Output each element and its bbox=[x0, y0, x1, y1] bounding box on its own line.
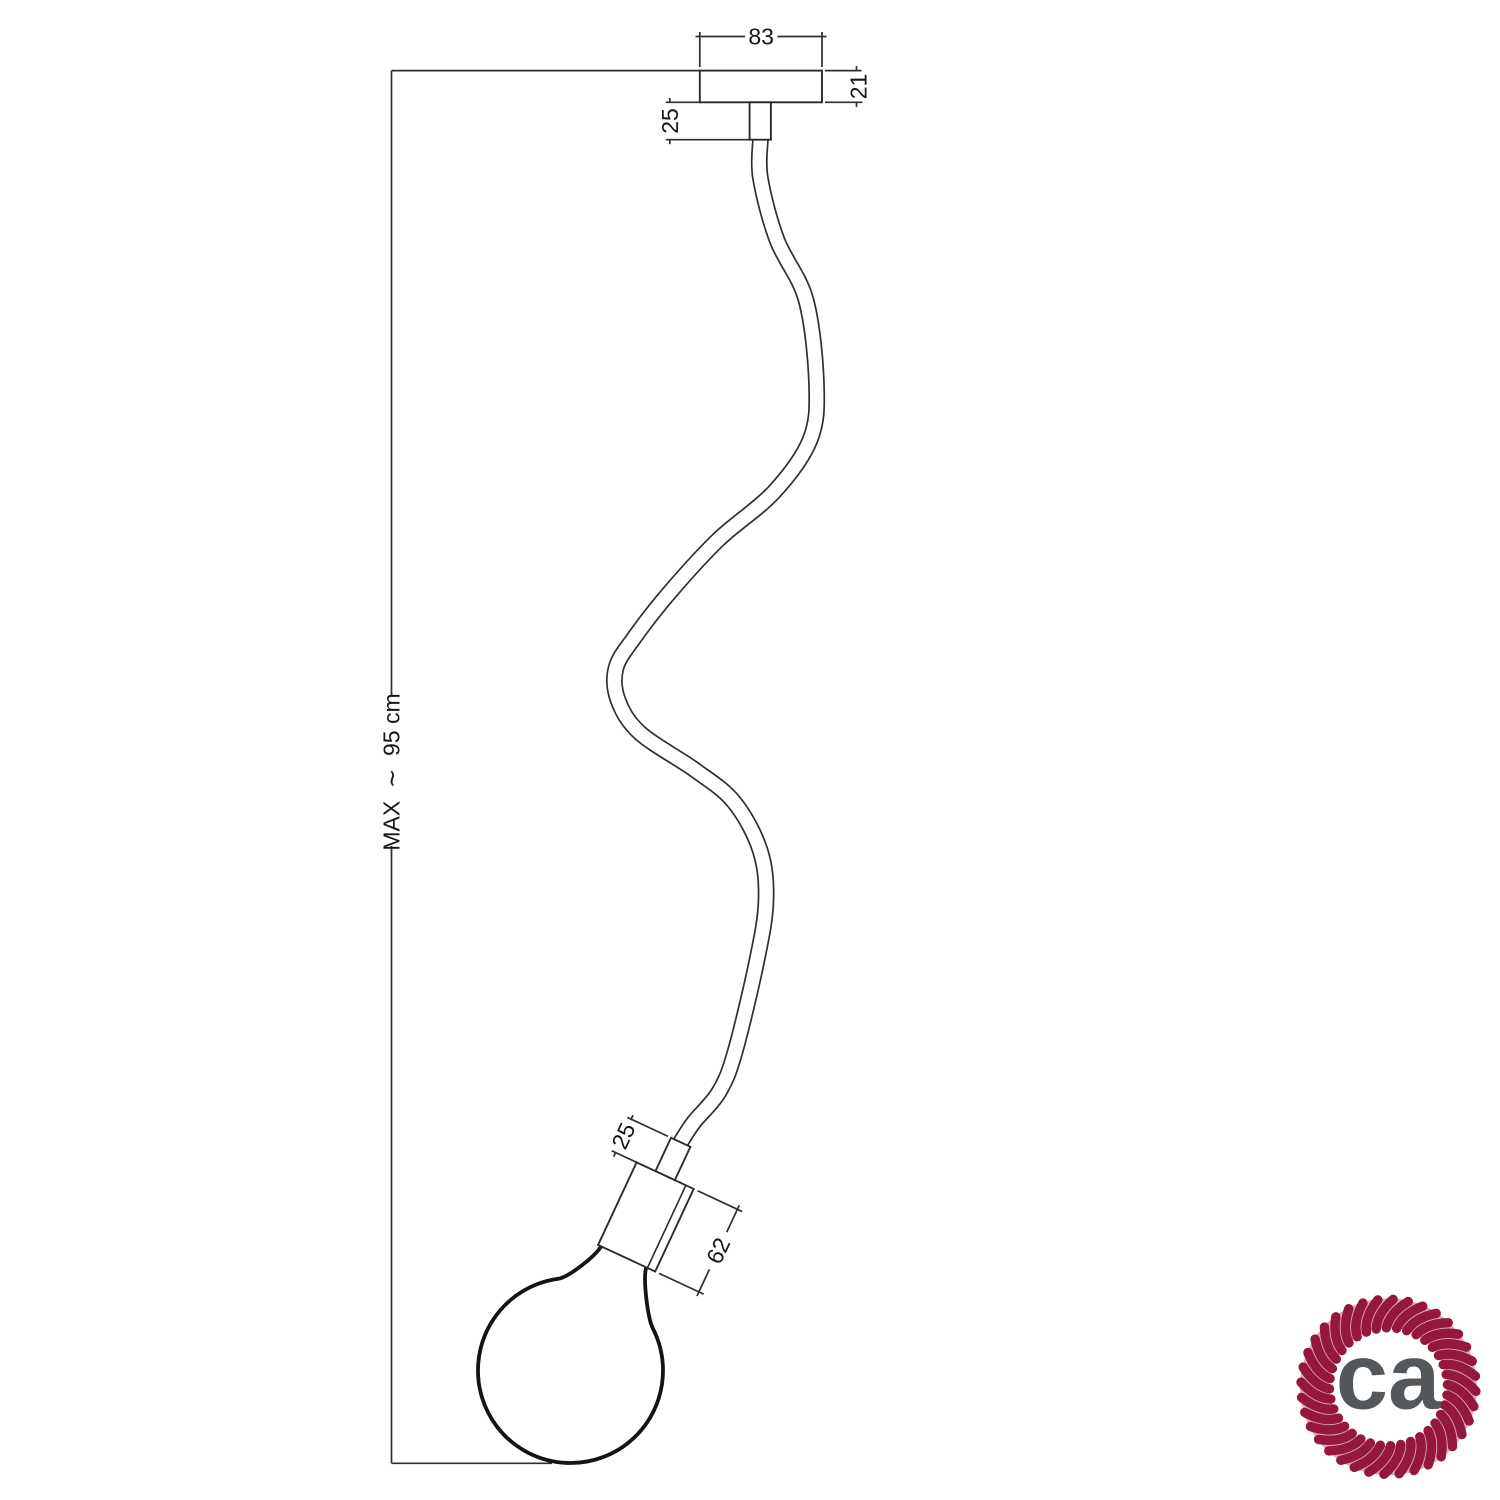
svg-text:83: 83 bbox=[748, 24, 774, 50]
svg-text:ca: ca bbox=[1336, 1323, 1441, 1428]
svg-text:MAX ∼ 95 cm: MAX ∼ 95 cm bbox=[379, 693, 405, 850]
svg-text:25: 25 bbox=[657, 108, 683, 134]
svg-text:21: 21 bbox=[846, 74, 872, 100]
